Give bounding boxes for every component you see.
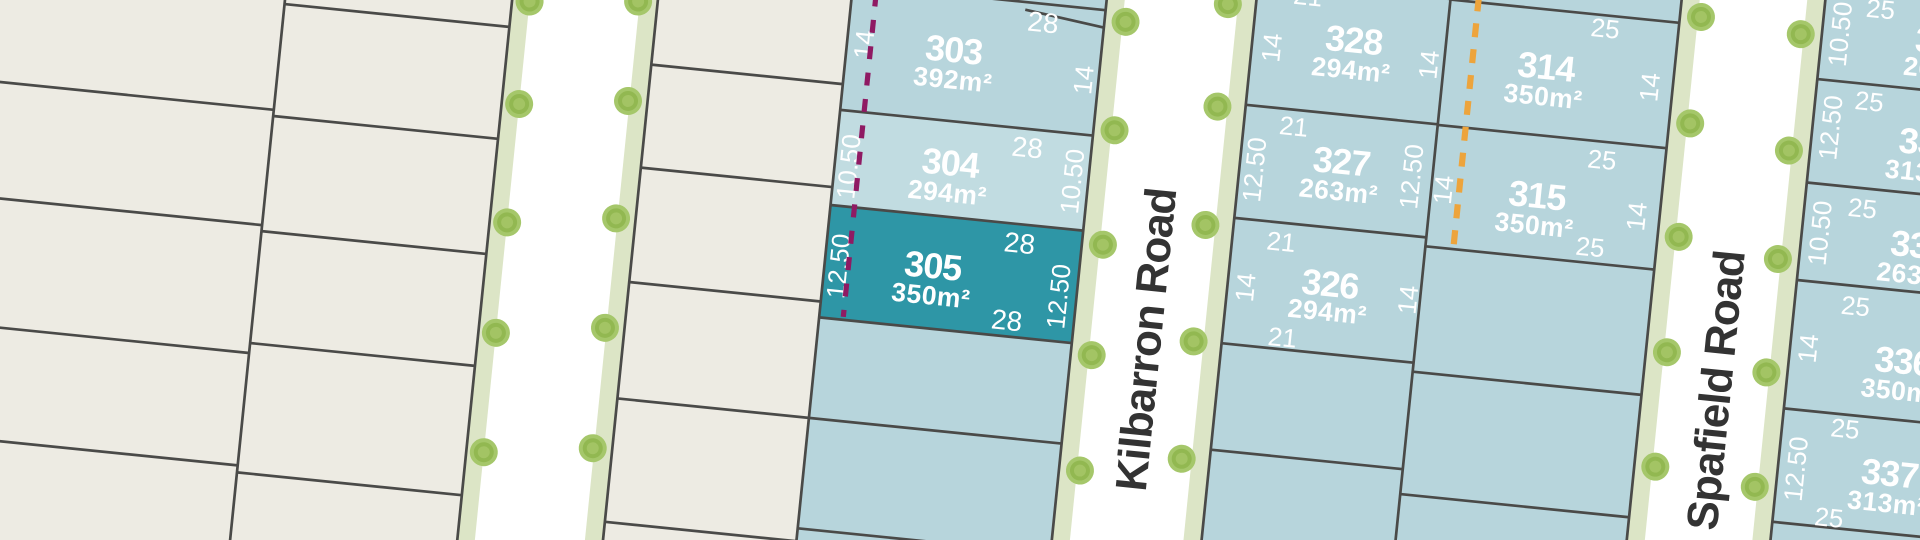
svg-text:14: 14 [1427,174,1460,206]
svg-text:14: 14 [1229,271,1262,303]
svg-text:25: 25 [1865,0,1897,25]
svg-text:21: 21 [1265,225,1297,258]
svg-text:14: 14 [1620,201,1653,233]
svg-text:28: 28 [1003,226,1037,260]
svg-text:25: 25 [1840,290,1872,323]
svg-text:25: 25 [1589,12,1621,45]
svg-text:25: 25 [1847,192,1879,225]
svg-text:14: 14 [1392,284,1425,316]
svg-text:21: 21 [1267,321,1299,354]
svg-text:25: 25 [1574,231,1606,264]
svg-text:14: 14 [1067,64,1100,96]
svg-text:25: 25 [1829,412,1861,445]
svg-text:28: 28 [990,303,1024,337]
svg-text:14: 14 [1633,71,1666,103]
svg-text:25: 25 [1813,501,1845,534]
svg-text:28: 28 [1010,131,1044,165]
svg-text:14: 14 [1412,49,1445,81]
svg-text:28: 28 [1026,6,1060,40]
svg-text:21: 21 [1278,110,1310,143]
svg-text:14: 14 [848,29,881,61]
svg-text:14: 14 [1792,333,1825,365]
svg-text:14: 14 [1255,32,1288,64]
svg-text:25: 25 [1586,143,1618,176]
svg-text:25: 25 [1853,85,1885,118]
